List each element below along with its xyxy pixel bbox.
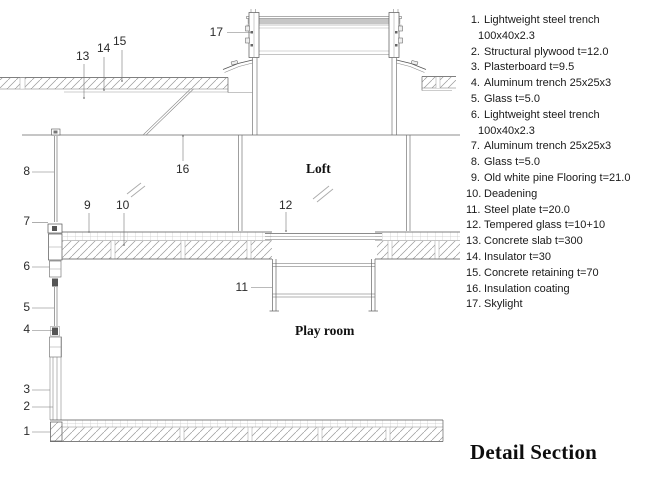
legend-item: 2.Structural plywood t=12.0	[466, 45, 650, 61]
legend-item-text: Old white pine Flooring t=21.0	[484, 172, 630, 184]
callout-8: 8	[16, 165, 30, 178]
legend-item: 11.Steel plate t=20.0	[466, 203, 650, 219]
legend-item: 4.Aluminum trench 25x25x3	[466, 76, 650, 92]
room-label-playroom: Play room	[295, 323, 354, 339]
legend-item-number: 5.	[466, 92, 480, 108]
legend-item-text: Plasterboard t=9.5	[484, 61, 574, 73]
drawing-title: Detail Section	[470, 440, 597, 465]
legend-item-text: Steel plate t=20.0	[484, 204, 570, 216]
callout-10: 10	[116, 199, 134, 212]
callout-3: 3	[16, 383, 30, 396]
legend-item-number: 4.	[466, 76, 480, 92]
legend-item-number: 11.	[466, 203, 480, 219]
detail-section-page: 17 13 14 15 8 16 9 10 12 7 6 11 5 4 3 2 …	[0, 0, 650, 481]
legend-item: 13.Concrete slab t=300	[466, 234, 650, 250]
legend-item-text: Concrete slab t=300	[484, 235, 583, 247]
legend-item-text2: 100x40x2.3	[466, 29, 650, 45]
floor-ground	[50, 420, 443, 442]
legend-item-text: Tempered glass t=10+10	[484, 219, 605, 231]
steel-plate-frame	[270, 259, 379, 311]
callout-7: 7	[16, 215, 30, 228]
callout-15: 15	[113, 35, 131, 48]
glass-marks	[127, 183, 333, 202]
legend-item-number: 12.	[466, 218, 480, 234]
legend-item-number: 3.	[466, 60, 480, 76]
legend-item: 9.Old white pine Flooring t=21.0	[466, 171, 650, 187]
legend-item-text: Aluminum trench 25x25x3	[484, 140, 611, 152]
floor-loft	[62, 232, 460, 259]
callout-13: 13	[76, 50, 94, 63]
callout-2: 2	[16, 400, 30, 413]
legend-item-text: Skylight	[484, 298, 523, 310]
legend-item: 10.Deadening	[466, 187, 650, 203]
legend-item-number: 15.	[466, 266, 480, 282]
legend-item-text: Deadening	[484, 188, 537, 200]
callout-16: 16	[176, 163, 194, 176]
legend-item-number: 2.	[466, 45, 480, 61]
legend-item: 17.Skylight	[466, 297, 650, 313]
legend-item: 16.Insulation coating	[466, 282, 650, 298]
legend-item: 12.Tempered glass t=10+10	[466, 218, 650, 234]
roof-slab-right	[422, 77, 456, 91]
legend-item-number: 8.	[466, 155, 480, 171]
legend-item: 14.Insulator t=30	[466, 250, 650, 266]
skylight	[223, 9, 426, 135]
legend-item-number: 14.	[466, 250, 480, 266]
legend-item-number: 7.	[466, 139, 480, 155]
callout-12: 12	[279, 199, 297, 212]
callout-17: 17	[205, 26, 223, 39]
legend-item-text: Insulator t=30	[484, 251, 551, 263]
legend-item-text: Lightweight steel trench	[484, 109, 600, 121]
legend-item-number: 16.	[466, 282, 480, 298]
sloped-member	[144, 89, 194, 135]
roof-slab-left	[0, 78, 253, 93]
legend-item: 5.Glass t=5.0	[466, 92, 650, 108]
legend-item: 15.Concrete retaining t=70	[466, 266, 650, 282]
legend-item-number: 9.	[466, 171, 480, 187]
legend-item-number: 17.	[466, 297, 480, 313]
loft-walls	[239, 135, 411, 231]
legend-item: 7.Aluminum trench 25x25x3	[466, 139, 650, 155]
callout-4: 4	[16, 323, 30, 336]
callout-9: 9	[84, 199, 98, 212]
legend-item: 8.Glass t=5.0	[466, 155, 650, 171]
legend-item: 6.Lightweight steel trench 100x40x2.3	[466, 108, 650, 140]
window-wall-left	[48, 136, 62, 441]
legend-item-text: Glass t=5.0	[484, 156, 540, 168]
callout-5: 5	[16, 301, 30, 314]
legend-item-text: Glass t=5.0	[484, 93, 540, 105]
legend-item-number: 13.	[466, 234, 480, 250]
ceiling-line	[22, 129, 460, 135]
legend-item-text: Insulation coating	[484, 283, 570, 295]
legend-item: 1.Lightweight steel trench 100x40x2.3	[466, 13, 650, 45]
legend-item-text: Structural plywood t=12.0	[484, 46, 608, 58]
legend-item: 3.Plasterboard t=9.5	[466, 60, 650, 76]
legend-item-number: 1.	[466, 13, 480, 29]
room-label-loft: Loft	[306, 161, 331, 177]
legend-item-text: Lightweight steel trench	[484, 14, 600, 26]
callout-1: 1	[16, 425, 30, 438]
legend-item-text: Aluminum trench 25x25x3	[484, 77, 611, 89]
callout-6: 6	[16, 260, 30, 273]
legend-item-number: 10.	[466, 187, 480, 203]
callout-11: 11	[230, 281, 248, 294]
legend-item-text2: 100x40x2.3	[466, 124, 650, 140]
legend-item-number: 6.	[466, 108, 480, 124]
material-legend: 1.Lightweight steel trench 100x40x2.3 2.…	[466, 13, 650, 313]
legend-item-text: Concrete retaining t=70	[484, 267, 599, 279]
